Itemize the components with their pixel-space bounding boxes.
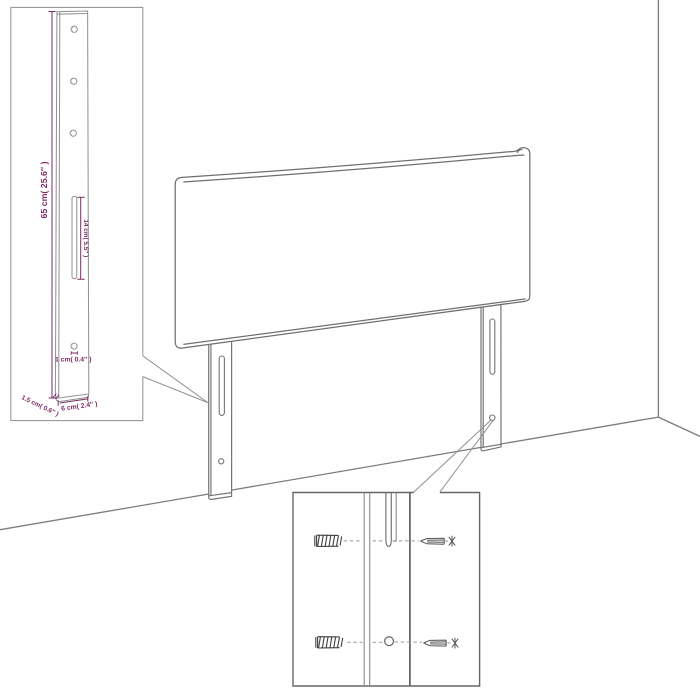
svg-text:14 cm( 5.5″ ): 14 cm( 5.5″ ) — [82, 219, 89, 257]
svg-text:1 cm( 0.4″ ): 1 cm( 0.4″ ) — [55, 357, 92, 364]
svg-text:65 cm( 25.6″ ): 65 cm( 25.6″ ) — [39, 161, 49, 218]
